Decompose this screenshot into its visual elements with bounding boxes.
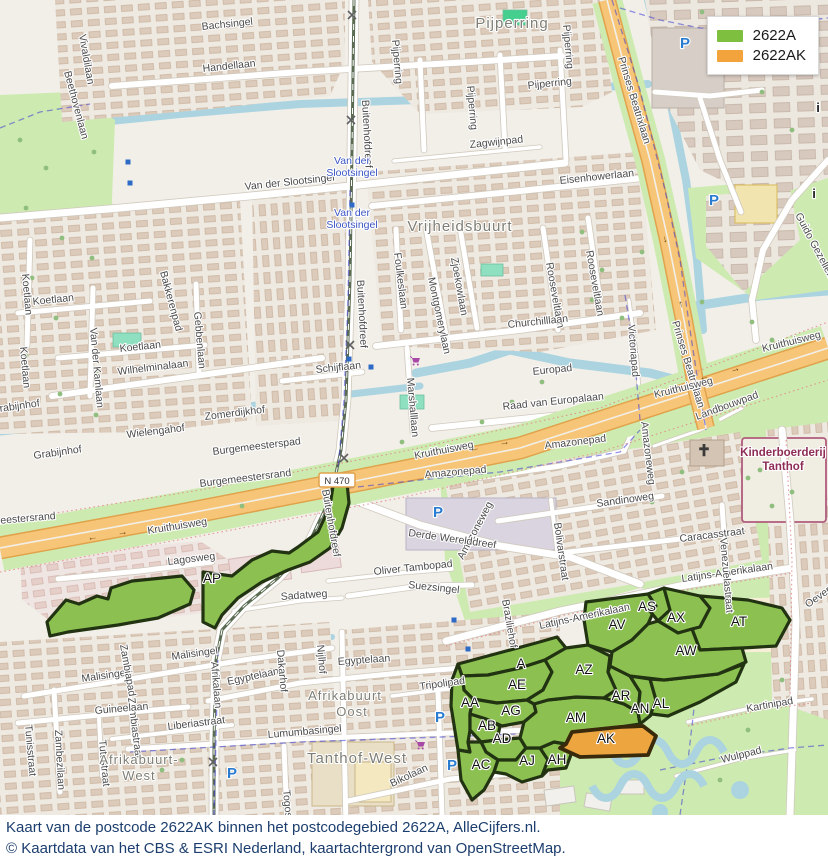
postcode-area-label-AA: AA — [461, 695, 479, 710]
map-canvas[interactable]: APAAEAAAGABADACAJAHAMAZARANALAVASAXATAWA… — [0, 0, 828, 815]
place-label: Afrikabuurt- — [99, 752, 178, 767]
legend-item-2622A: 2622A — [717, 27, 806, 44]
transit-stop-icon — [126, 160, 131, 165]
legend-item-2622AK: 2622AK — [717, 47, 806, 64]
parking-icon: P — [680, 35, 690, 52]
postcode-area-label-AH: AH — [548, 752, 567, 767]
postcode-area-label-AC: AC — [472, 757, 491, 772]
postcode-area-label-AJ: AJ — [519, 753, 535, 768]
transit-stop-icon — [466, 647, 471, 652]
postcode-area-label-AS: AS — [638, 599, 656, 614]
map-legend: 2622A 2622AK — [707, 16, 819, 75]
place-label: Afrikabuurt — [308, 688, 382, 703]
place-label: Oost — [336, 704, 367, 719]
transit-stop-icon — [369, 365, 374, 370]
street-label: Nijlhof — [314, 644, 329, 674]
postcode-area-label-AP: AP — [203, 571, 221, 586]
postcode-area-label-AX: AX — [667, 610, 685, 625]
place-label: West — [122, 768, 155, 783]
legend-label: 2622AK — [753, 47, 806, 64]
transit-stop-icon — [452, 618, 457, 623]
postcode-area-label-AG: AG — [501, 703, 521, 718]
map-svg[interactable]: APAAEAAAGABADACAJAHAMAZARANALAVASAXATAWA… — [0, 0, 828, 815]
place-label: Tanthof-West — [307, 750, 407, 767]
transit-stop-icon — [350, 203, 355, 208]
postcode-area-label-AD: AD — [493, 731, 512, 746]
postcode-area-label-A: A — [516, 656, 525, 671]
postcode-area-label-AR: AR — [612, 688, 631, 703]
parking-icon: P — [433, 504, 443, 521]
caption: Kaart van de postcode 2622AK binnen het … — [0, 815, 828, 861]
transit-stop-icon — [128, 181, 133, 186]
postcode-area-label-AZ: AZ — [575, 662, 592, 677]
postcode-area-label-AW: AW — [675, 643, 697, 658]
info-icon: i — [812, 186, 816, 201]
info-icon: i — [816, 100, 820, 115]
transit-stop-label: Van derSlootsingel — [326, 155, 377, 179]
screenshot-root: APAAEAAAGABADACAJAHAMAZARANALAVASAXATAWA… — [0, 0, 828, 861]
place-label: Pijperring — [475, 15, 548, 32]
legend-swatch-orange — [717, 50, 743, 62]
transit-stop-icon — [347, 357, 352, 362]
oneway-arrow-icon: ← — [468, 442, 480, 455]
road-badge: N 470 — [319, 473, 355, 487]
caption-line-2: © Kaartdata van het CBS & ESRI Nederland… — [6, 838, 828, 859]
legend-label: 2622A — [753, 27, 796, 44]
postcode-area-label-AT: AT — [731, 614, 747, 629]
postcode-area-label-AN: AN — [631, 701, 650, 716]
legend-swatch-green — [717, 30, 743, 42]
transit-stop-label: Van derSlootsingel — [326, 207, 377, 231]
oneway-arrow-icon: ← — [87, 531, 99, 544]
caption-line-1: Kaart van de postcode 2622AK binnen het … — [6, 817, 828, 838]
oneway-arrow-icon: → — [498, 436, 510, 449]
parking-icon: P — [709, 192, 719, 209]
postcode-area-label-AV: AV — [608, 617, 625, 632]
road-badge-label: N 470 — [324, 476, 349, 487]
parking-icon: P — [227, 765, 237, 782]
postcode-area-label-AL: AL — [653, 696, 670, 711]
postcode-area-label-AK: AK — [597, 731, 615, 746]
parking-icon: P — [435, 709, 445, 726]
place-label: Vrijheidsbuurt — [407, 218, 512, 235]
postcode-area-label-AE: AE — [508, 677, 526, 692]
oneway-arrow-icon: → — [117, 526, 129, 539]
postcode-area-label-AM: AM — [566, 710, 586, 725]
parking-icon: P — [447, 757, 457, 774]
